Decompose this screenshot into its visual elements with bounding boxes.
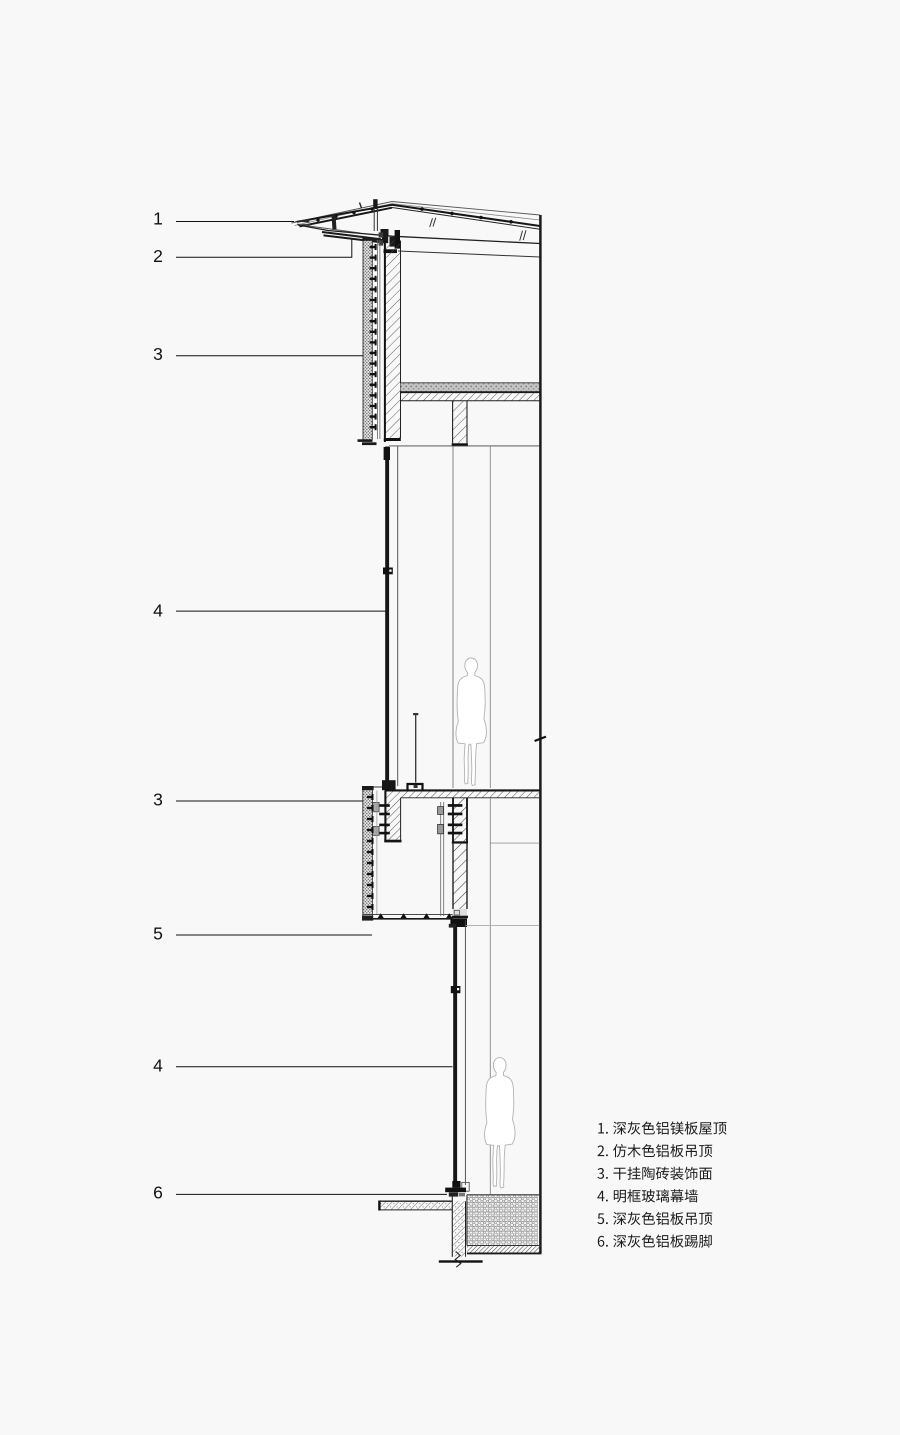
svg-text:1: 1 [153, 209, 163, 229]
svg-text:2: 2 [153, 246, 163, 266]
svg-text:5: 5 [153, 923, 163, 943]
svg-text:3: 3 [153, 789, 163, 809]
svg-text:3: 3 [153, 344, 163, 364]
svg-text:4: 4 [153, 1055, 163, 1075]
svg-text:4: 4 [153, 601, 163, 621]
svg-text:6: 6 [153, 1182, 163, 1202]
